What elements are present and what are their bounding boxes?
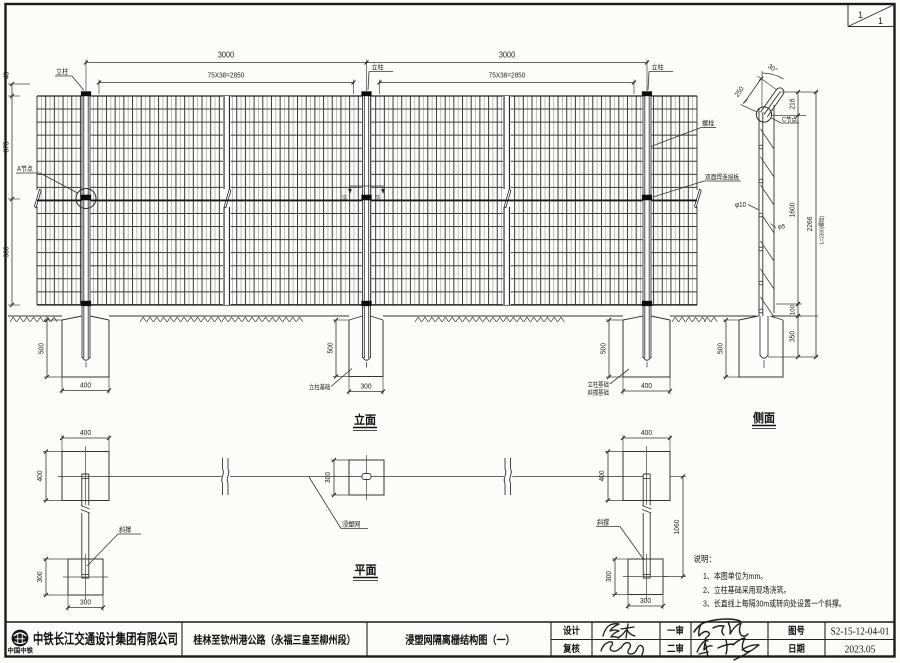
svg-text:日期: 日期 bbox=[788, 642, 805, 654]
svg-text:立柱: 立柱 bbox=[372, 62, 385, 72]
svg-text:500: 500 bbox=[327, 342, 334, 353]
svg-text:复核: 复核 bbox=[562, 642, 580, 654]
svg-text:1: 1 bbox=[858, 10, 863, 20]
svg-text:75X38=2850: 75X38=2850 bbox=[208, 72, 245, 79]
svg-text:立柱基础: 立柱基础 bbox=[588, 380, 610, 389]
svg-text:500: 500 bbox=[600, 343, 607, 354]
svg-text:桂林至钦州港公路（永福三皇至柳州段）: 桂林至钦州港公路（永福三皇至柳州段） bbox=[193, 633, 356, 647]
svg-text:60: 60 bbox=[343, 195, 349, 201]
svg-text:L=2300(螺栓): L=2300(螺栓) bbox=[818, 216, 826, 244]
svg-text:3000: 3000 bbox=[218, 50, 234, 59]
svg-text:设计: 设计 bbox=[563, 624, 580, 636]
svg-text:S2-15-12-04-01: S2-15-12-04-01 bbox=[831, 626, 890, 637]
svg-text:216: 216 bbox=[789, 98, 796, 109]
svg-text:400: 400 bbox=[80, 430, 91, 437]
svg-text:A节点: A节点 bbox=[17, 165, 33, 174]
svg-text:43: 43 bbox=[3, 72, 10, 80]
svg-text:双面焊连接板: 双面焊连接板 bbox=[705, 173, 739, 181]
svg-text:500: 500 bbox=[38, 343, 45, 354]
svg-text:斜撑: 斜撑 bbox=[119, 525, 132, 535]
svg-text:400: 400 bbox=[80, 382, 91, 389]
svg-text:侧面: 侧面 bbox=[753, 411, 776, 426]
svg-text:立柱: 立柱 bbox=[652, 62, 665, 72]
svg-text:φ10: φ10 bbox=[735, 202, 746, 209]
svg-text:300: 300 bbox=[640, 598, 651, 605]
svg-text:400: 400 bbox=[641, 430, 652, 437]
svg-text:300: 300 bbox=[37, 571, 44, 582]
svg-text:浸塑网隔离栅结构图（一）: 浸塑网隔离栅结构图（一） bbox=[405, 633, 514, 647]
svg-text:75X38=2850: 75X38=2850 bbox=[489, 72, 526, 79]
svg-text:2、立柱基础采用现场浇筑。: 2、立柱基础采用现场浇筑。 bbox=[703, 584, 790, 595]
svg-text:3000: 3000 bbox=[499, 50, 515, 59]
svg-text:二审: 二审 bbox=[667, 642, 684, 654]
svg-text:斜撑基础: 斜撑基础 bbox=[588, 388, 610, 397]
svg-text:一审: 一审 bbox=[667, 624, 684, 636]
svg-text:说明：: 说明： bbox=[694, 553, 716, 564]
svg-text:900: 900 bbox=[3, 246, 10, 257]
svg-text:875: 875 bbox=[3, 141, 10, 152]
svg-text:300: 300 bbox=[80, 599, 91, 606]
svg-text:图号: 图号 bbox=[788, 626, 805, 637]
svg-text:平面: 平面 bbox=[354, 564, 377, 578]
svg-text:300: 300 bbox=[606, 571, 613, 582]
svg-text:立面: 立面 bbox=[354, 413, 377, 428]
svg-text:300: 300 bbox=[325, 472, 332, 483]
svg-text:中国中铁: 中国中铁 bbox=[8, 645, 34, 654]
svg-text:1600: 1600 bbox=[789, 202, 796, 217]
svg-text:螺栓: 螺栓 bbox=[702, 118, 715, 128]
svg-text:300: 300 bbox=[360, 383, 371, 390]
svg-text:2266: 2266 bbox=[807, 216, 814, 231]
svg-text:C节点: C节点 bbox=[782, 115, 797, 124]
svg-text:浸塑网: 浸塑网 bbox=[342, 519, 361, 529]
svg-text:2023.05: 2023.05 bbox=[845, 644, 876, 655]
svg-text:斜撑: 斜撑 bbox=[597, 517, 610, 527]
svg-text:400: 400 bbox=[641, 383, 652, 390]
svg-text:400: 400 bbox=[599, 470, 606, 481]
svg-text:1: 1 bbox=[878, 16, 883, 26]
svg-text:立柱基础: 立柱基础 bbox=[309, 383, 331, 392]
svg-text:立柱: 立柱 bbox=[56, 67, 69, 77]
svg-text:φ5: φ5 bbox=[778, 223, 786, 230]
svg-text:1060: 1060 bbox=[674, 519, 681, 534]
svg-text:60: 60 bbox=[376, 195, 382, 201]
svg-text:1、本图单位为mm。: 1、本图单位为mm。 bbox=[703, 570, 767, 581]
svg-text:350: 350 bbox=[789, 331, 796, 342]
svg-text:500: 500 bbox=[717, 343, 724, 354]
svg-text:100: 100 bbox=[789, 304, 796, 315]
svg-text:中铁长江交通设计集团有限公司: 中铁长江交通设计集团有限公司 bbox=[33, 630, 178, 647]
svg-text:3、长直线上每隔30m或转向处设置一个斜撑。: 3、长直线上每隔30m或转向处设置一个斜撑。 bbox=[703, 598, 846, 609]
svg-text:400: 400 bbox=[37, 470, 44, 481]
